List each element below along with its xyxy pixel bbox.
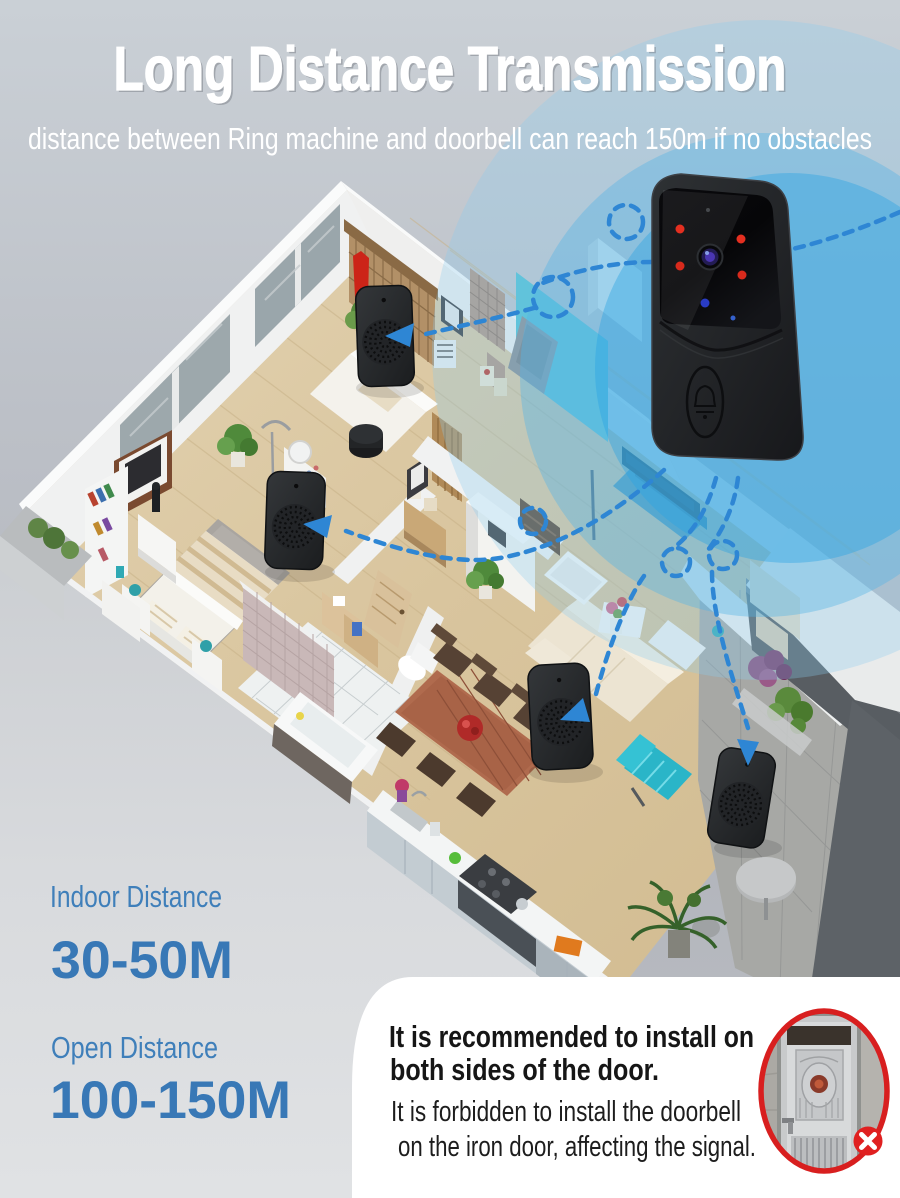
svg-text:both sides of the door.: both sides of the door.: [390, 1052, 659, 1087]
svg-text:It is forbidden to install the: It is forbidden to install the doorbell: [391, 1096, 741, 1128]
svg-text:Open Distance: Open Distance: [51, 1030, 218, 1065]
svg-text:30-50M: 30-50M: [51, 931, 233, 990]
svg-text:distance between Ring machine: distance between Ring machine and doorbe…: [28, 121, 872, 156]
svg-text:on the iron door, affecting th: on the iron door, affecting the signal.: [398, 1131, 756, 1163]
svg-text:Indoor Distance: Indoor Distance: [50, 879, 222, 914]
svg-text:It is recommended to install o: It is recommended to install on: [389, 1019, 754, 1054]
svg-text:Long Distance Transmission: Long Distance Transmission: [114, 35, 787, 104]
svg-text:100-150M: 100-150M: [50, 1071, 291, 1130]
